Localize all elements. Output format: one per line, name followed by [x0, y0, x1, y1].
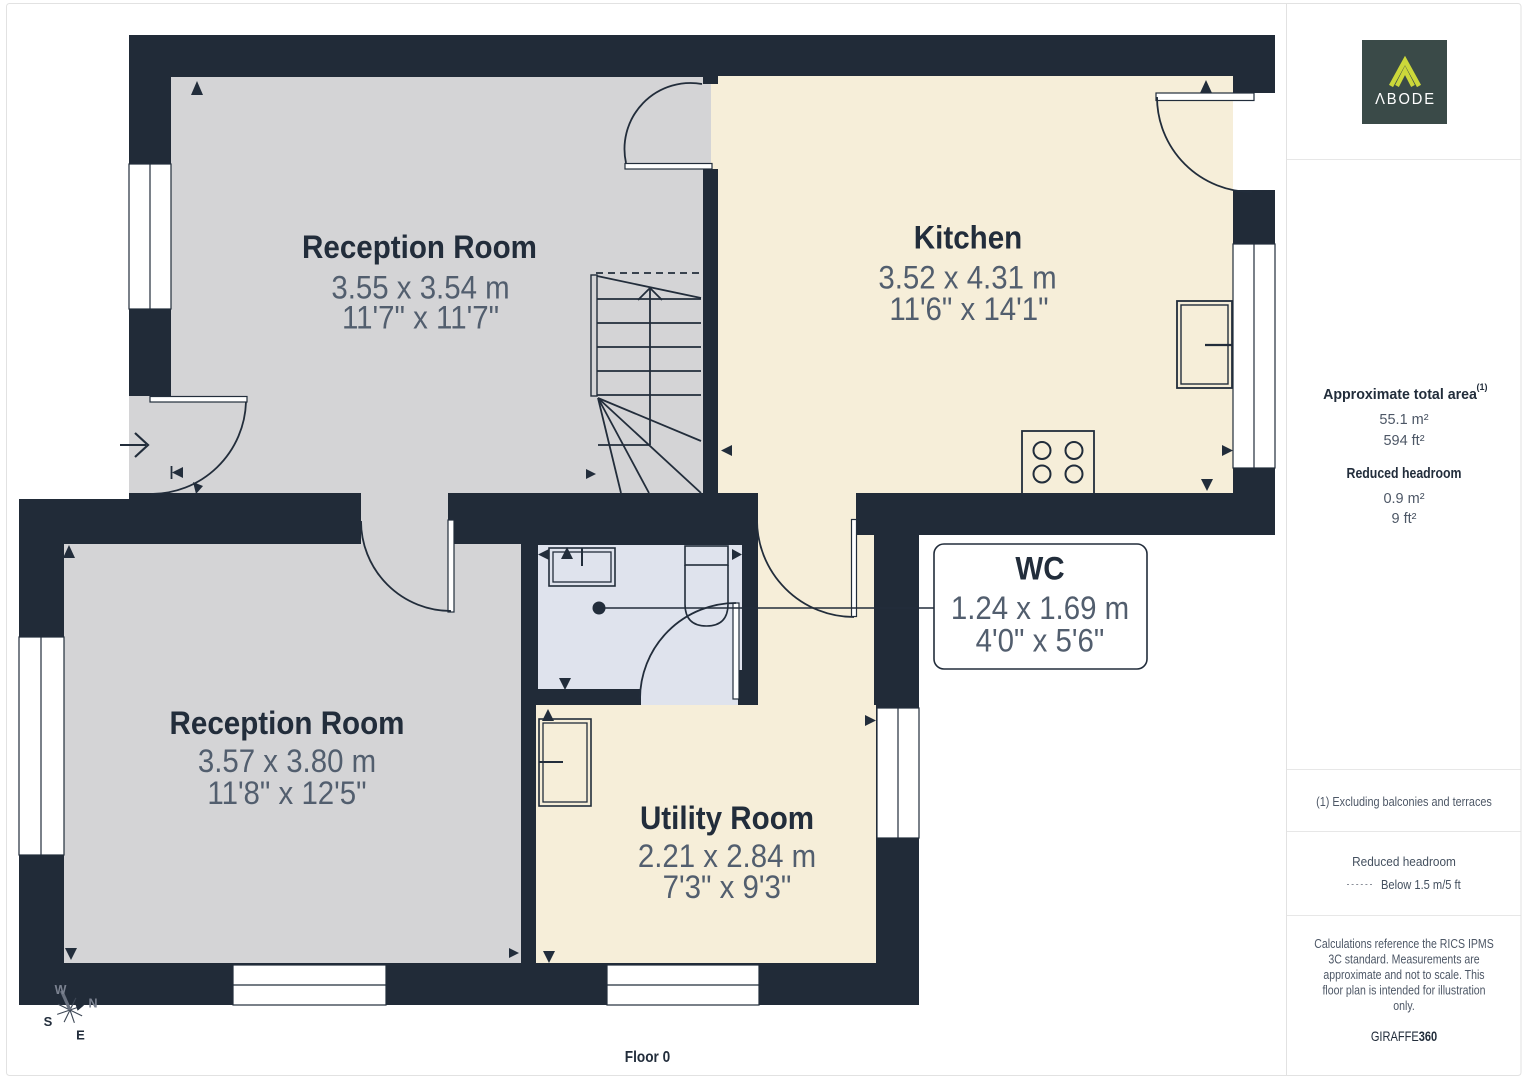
svg-text:11'8" x 12'5": 11'8" x 12'5": [207, 775, 366, 811]
svg-text:Reception Room: Reception Room: [170, 705, 405, 742]
svg-text:Kitchen: Kitchen: [914, 219, 1022, 256]
svg-text:(1) Excluding balconies and te: (1) Excluding balconies and terraces: [1316, 795, 1492, 809]
svg-text:WC: WC: [1015, 550, 1064, 587]
svg-text:Reduced headroom: Reduced headroom: [1347, 465, 1462, 481]
svg-text:E: E: [76, 1028, 85, 1043]
svg-text:1.24 x 1.69 m: 1.24 x 1.69 m: [951, 590, 1129, 626]
svg-text:0.9 m²: 0.9 m²: [1383, 491, 1424, 507]
svg-text:W: W: [55, 983, 67, 997]
svg-text:only.: only.: [1393, 1000, 1415, 1013]
svg-text:ΛBODE: ΛBODE: [1375, 90, 1436, 108]
svg-text:Floor 0: Floor 0: [625, 1049, 670, 1066]
svg-text:Calculations reference the RIC: Calculations reference the RICS IPMS: [1314, 938, 1494, 951]
svg-text:approximate and not to scale.: approximate and not to scale. This: [1323, 969, 1484, 982]
svg-text:11'7" x 11'7": 11'7" x 11'7": [342, 299, 499, 335]
svg-text:55.1 m²: 55.1 m²: [1379, 412, 1428, 428]
svg-text:11'6" x 14'1": 11'6" x 14'1": [889, 291, 1048, 327]
svg-text:floor plan is intended for ill: floor plan is intended for illustration: [1322, 985, 1485, 998]
svg-text:S: S: [44, 1014, 53, 1029]
svg-text:Below 1.5 m/5 ft: Below 1.5 m/5 ft: [1381, 877, 1461, 892]
svg-text:Reduced headroom: Reduced headroom: [1352, 854, 1456, 869]
svg-text:Approximate total area: Approximate total area: [1323, 387, 1478, 403]
svg-text:4'0" x 5'6": 4'0" x 5'6": [976, 622, 1105, 658]
svg-text:7'3" x 9'3": 7'3" x 9'3": [663, 869, 792, 905]
svg-text:GIRAFFE360: GIRAFFE360: [1371, 1029, 1437, 1044]
svg-text:Reception Room: Reception Room: [302, 229, 537, 266]
svg-text:N: N: [88, 997, 97, 1011]
svg-text:3.57 x 3.80 m: 3.57 x 3.80 m: [198, 743, 376, 779]
svg-text:594 ft²: 594 ft²: [1383, 433, 1424, 449]
svg-text:9 ft²: 9 ft²: [1392, 511, 1417, 527]
svg-text:(1): (1): [1477, 382, 1488, 392]
svg-text:Utility Room: Utility Room: [640, 800, 814, 837]
svg-text:3C standard. Measurements are: 3C standard. Measurements are: [1328, 954, 1479, 967]
